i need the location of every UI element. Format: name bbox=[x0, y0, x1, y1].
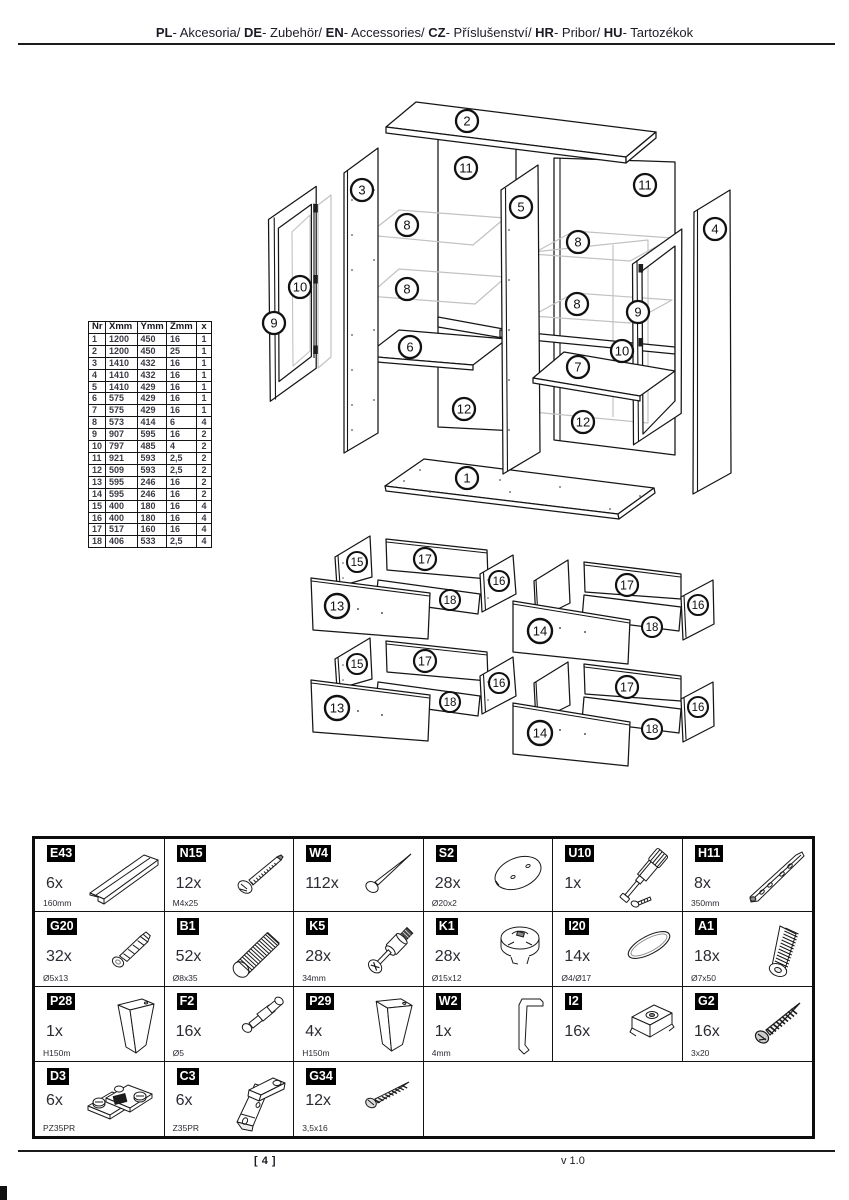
svg-text:9: 9 bbox=[634, 305, 641, 320]
svg-text:12: 12 bbox=[457, 402, 471, 417]
svg-text:17: 17 bbox=[620, 681, 634, 695]
svg-text:5: 5 bbox=[517, 200, 524, 215]
svg-text:16: 16 bbox=[692, 600, 705, 612]
svg-text:18: 18 bbox=[444, 697, 457, 709]
svg-text:10: 10 bbox=[293, 280, 307, 295]
svg-text:6: 6 bbox=[406, 340, 413, 355]
svg-text:14: 14 bbox=[533, 624, 547, 639]
svg-text:17: 17 bbox=[620, 579, 634, 593]
svg-text:18: 18 bbox=[444, 595, 457, 607]
svg-text:16: 16 bbox=[692, 702, 705, 714]
svg-text:3: 3 bbox=[358, 183, 365, 198]
svg-text:1: 1 bbox=[463, 471, 470, 486]
svg-text:18: 18 bbox=[646, 622, 659, 634]
svg-text:8: 8 bbox=[403, 282, 410, 297]
svg-text:10: 10 bbox=[615, 344, 629, 359]
svg-text:8: 8 bbox=[573, 297, 580, 312]
svg-text:9: 9 bbox=[270, 316, 277, 331]
svg-text:13: 13 bbox=[330, 701, 344, 716]
svg-text:8: 8 bbox=[574, 235, 581, 250]
svg-text:15: 15 bbox=[351, 659, 364, 671]
svg-text:16: 16 bbox=[493, 576, 506, 588]
svg-text:18: 18 bbox=[646, 724, 659, 736]
svg-text:12: 12 bbox=[576, 415, 590, 430]
svg-text:8: 8 bbox=[403, 218, 410, 233]
svg-text:14: 14 bbox=[533, 726, 547, 741]
svg-text:4: 4 bbox=[711, 222, 718, 237]
svg-text:11: 11 bbox=[459, 161, 473, 176]
svg-text:2: 2 bbox=[463, 114, 470, 129]
svg-text:17: 17 bbox=[418, 553, 432, 567]
svg-text:15: 15 bbox=[351, 557, 364, 569]
svg-text:16: 16 bbox=[493, 678, 506, 690]
svg-text:7: 7 bbox=[574, 360, 581, 375]
svg-text:13: 13 bbox=[330, 599, 344, 614]
svg-text:17: 17 bbox=[418, 655, 432, 669]
svg-text:11: 11 bbox=[638, 178, 652, 193]
